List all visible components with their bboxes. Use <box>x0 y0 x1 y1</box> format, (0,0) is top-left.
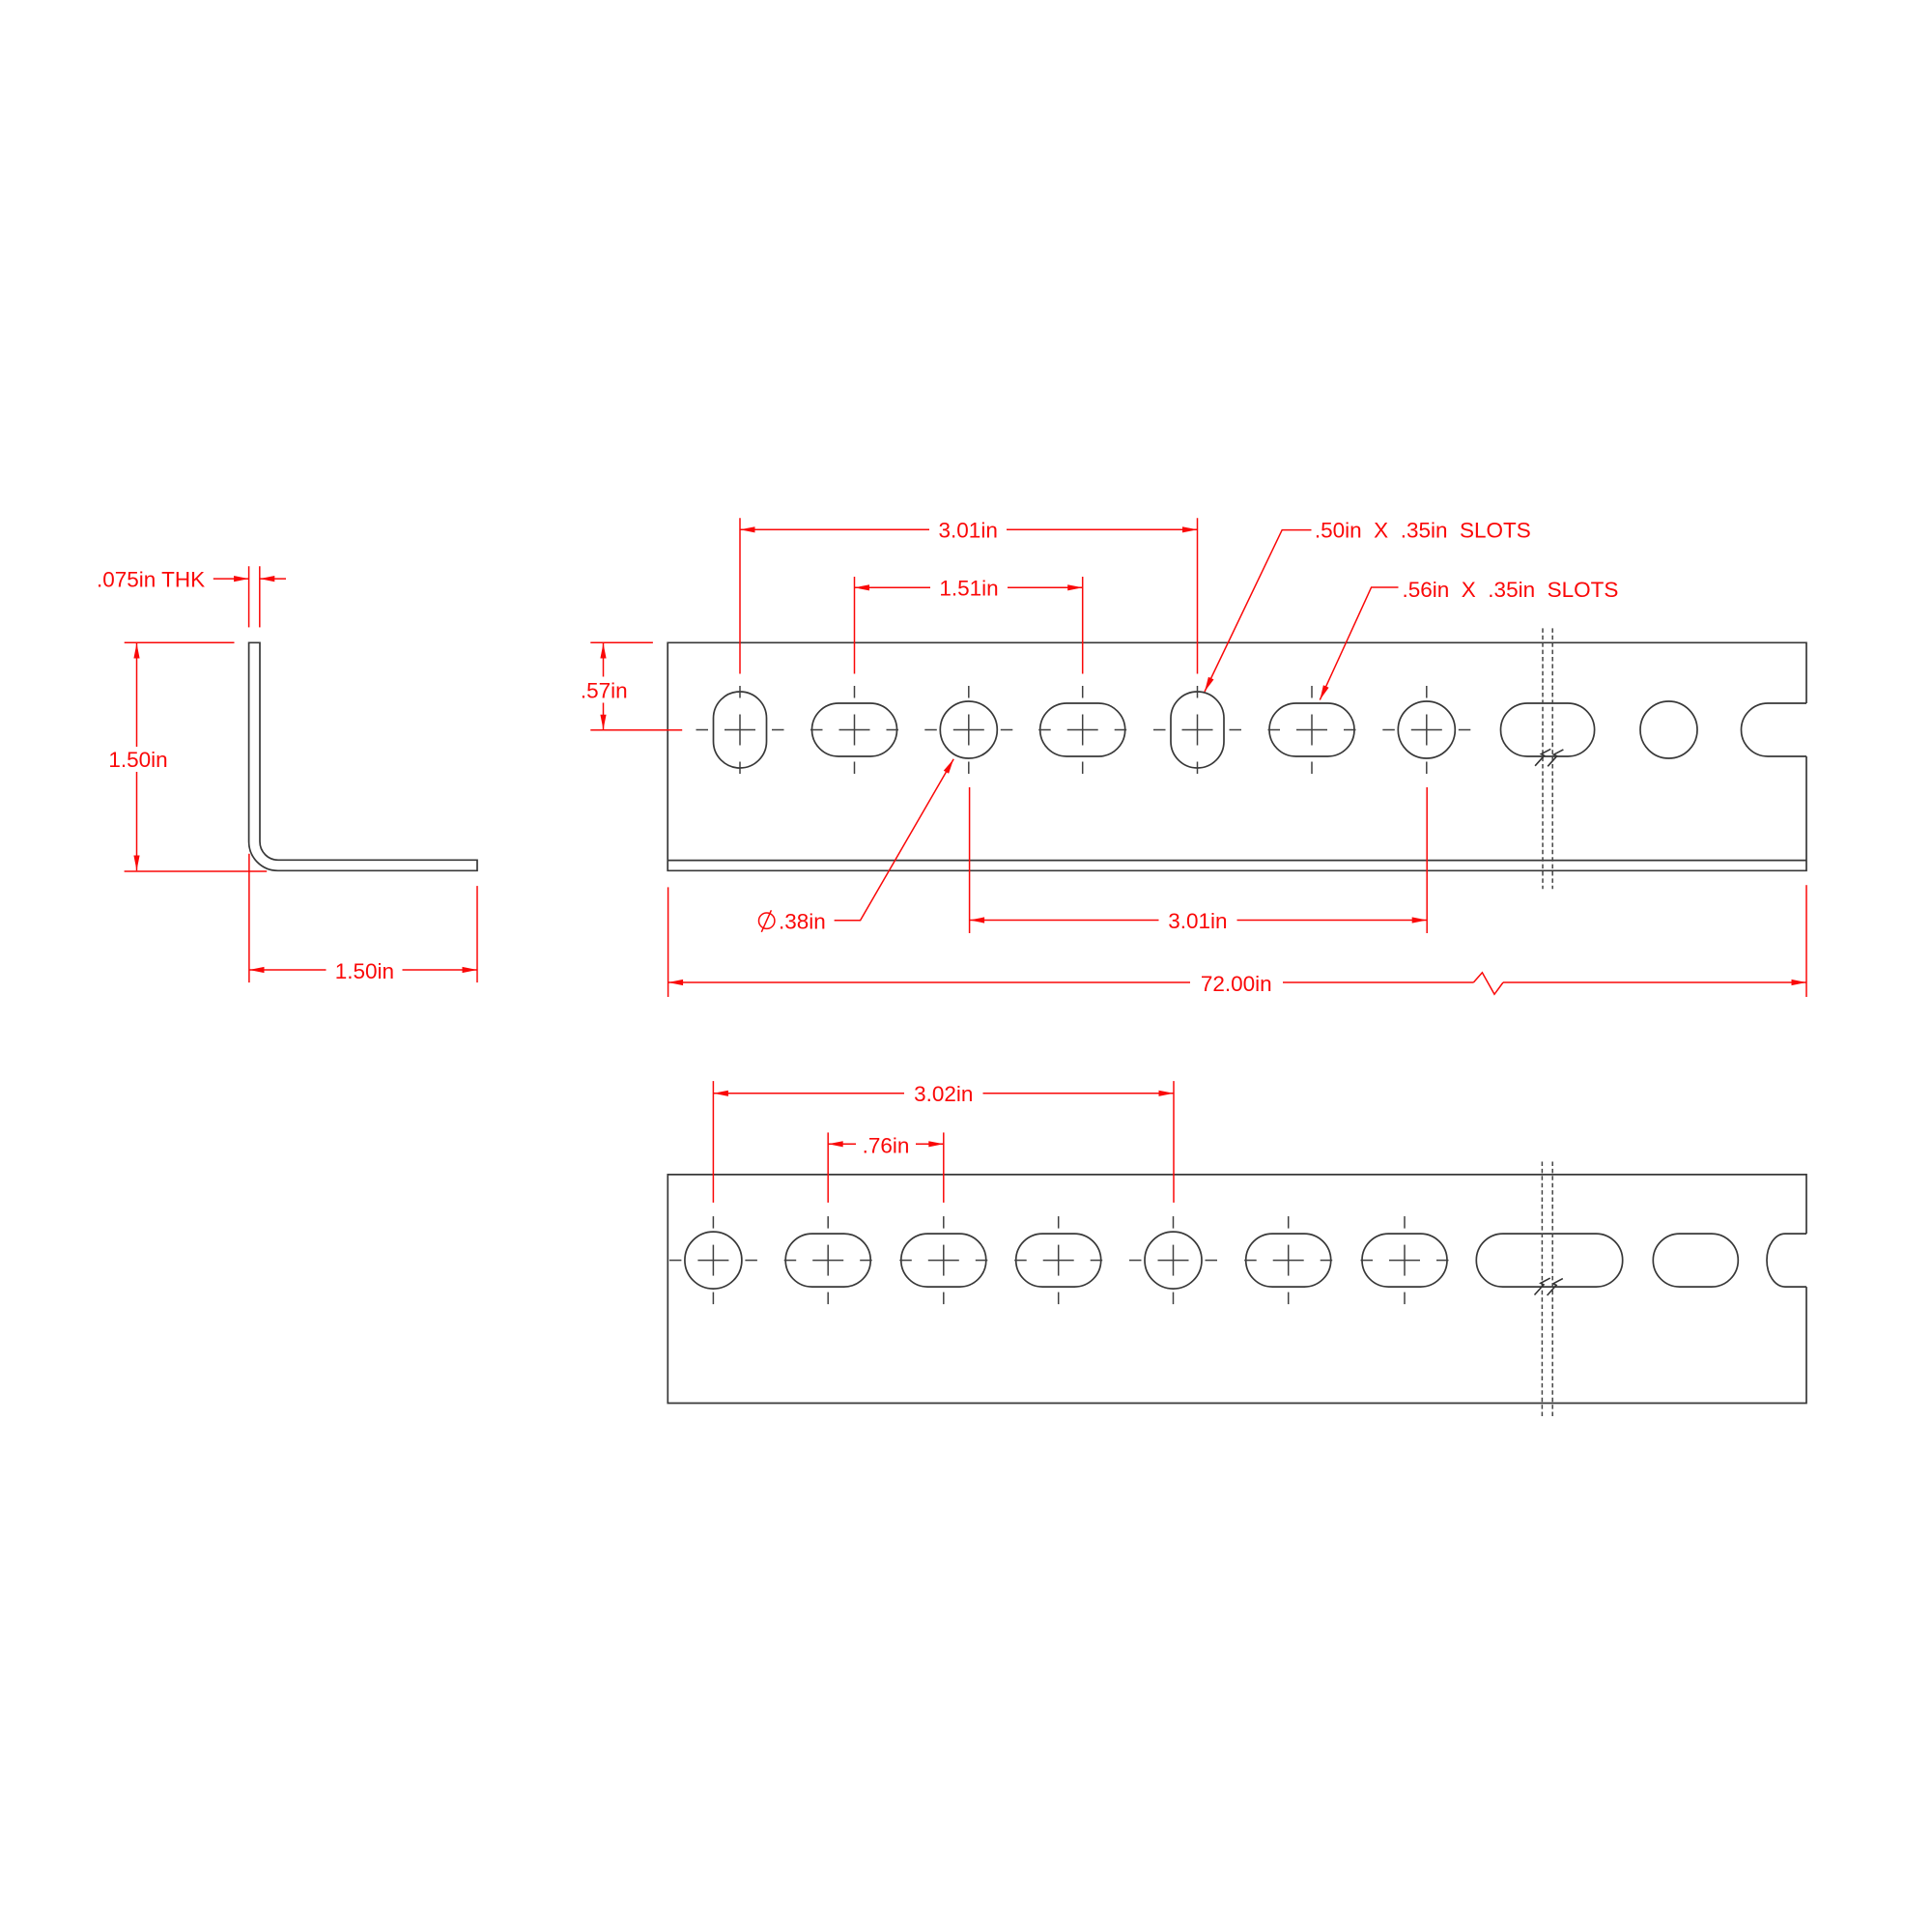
svg-text:1.51in: 1.51in <box>939 577 998 601</box>
svg-text:3.01in: 3.01in <box>1168 909 1227 933</box>
svg-text:.56in X .35in SLOTS: .56in X .35in SLOTS <box>1403 578 1619 602</box>
svg-text:3.02in: 3.02in <box>914 1082 973 1106</box>
svg-text:3.01in: 3.01in <box>939 519 998 543</box>
svg-text:1.50in: 1.50in <box>335 959 394 983</box>
svg-text:1.50in: 1.50in <box>108 748 167 772</box>
svg-text:.38in: .38in <box>779 910 826 934</box>
svg-text:.76in: .76in <box>863 1134 910 1158</box>
svg-text:72.00in: 72.00in <box>1201 972 1272 996</box>
svg-text:.075in THK: .075in THK <box>97 568 205 592</box>
svg-text:.50in X .35in SLOTS: .50in X .35in SLOTS <box>1315 519 1531 543</box>
svg-text:.57in: .57in <box>581 679 628 703</box>
